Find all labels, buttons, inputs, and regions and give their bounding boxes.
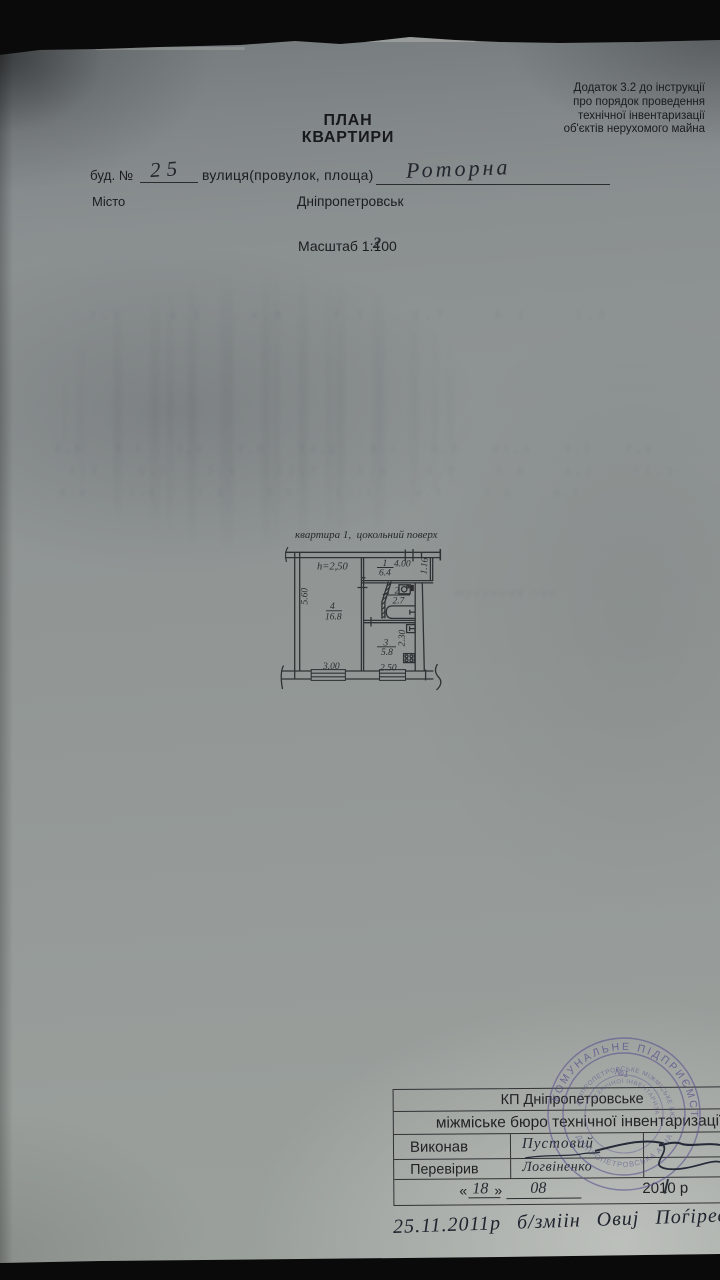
svg-text:2.30: 2.30 — [398, 629, 409, 646]
svg-text:2.50: 2.50 — [380, 664, 397, 674]
svg-text:6.4: 6.4 — [379, 569, 391, 579]
svg-text:h=2,50: h=2,50 — [317, 562, 348, 573]
svg-text:4.00: 4.00 — [394, 560, 411, 570]
svg-text:5.8: 5.8 — [381, 648, 393, 658]
svg-text:16.8: 16.8 — [325, 613, 342, 623]
svg-text:5.60: 5.60 — [301, 588, 311, 605]
svg-text:№1: №1 — [614, 1066, 630, 1079]
svg-text:1.16: 1.16 — [420, 557, 431, 575]
svg-text:2.7: 2.7 — [393, 597, 406, 607]
svg-text:3.00: 3.00 — [322, 662, 340, 672]
